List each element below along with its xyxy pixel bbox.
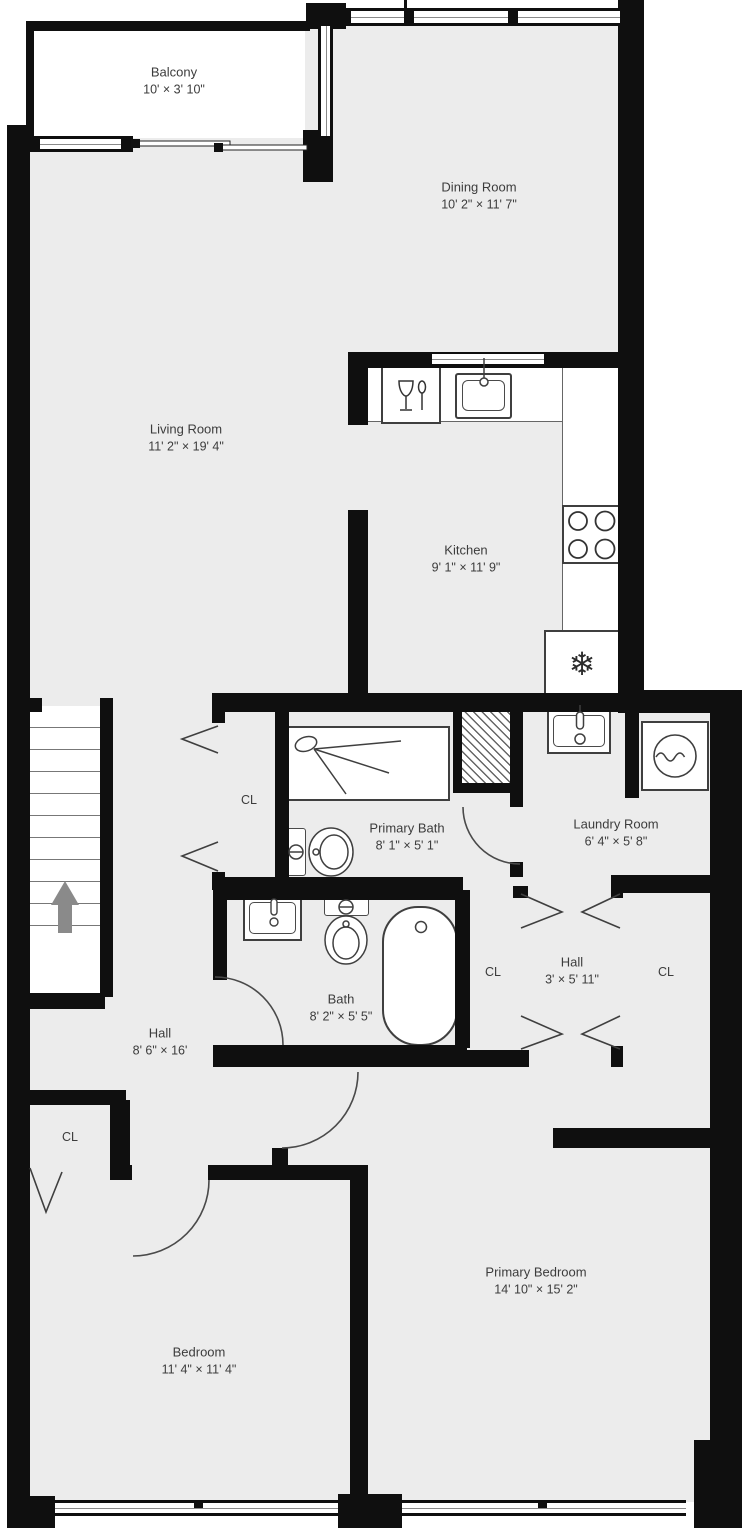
wall bbox=[110, 1100, 130, 1180]
room-name: Hall bbox=[133, 1025, 188, 1042]
window-cap bbox=[426, 352, 432, 366]
bathtub bbox=[382, 906, 458, 1046]
wall-tick bbox=[404, 0, 407, 10]
laundry-sink-basin bbox=[553, 715, 605, 747]
closet-label: CL bbox=[485, 965, 501, 979]
window bbox=[30, 136, 133, 152]
bath-sink-basin bbox=[249, 902, 296, 934]
wall bbox=[100, 698, 113, 997]
wall bbox=[7, 125, 30, 1528]
room-name: Laundry Room bbox=[573, 816, 658, 833]
kitchen-sink-basin bbox=[462, 380, 505, 411]
room-dims: 11' 2" × 19' 4" bbox=[148, 438, 224, 454]
wall bbox=[30, 698, 42, 712]
wall bbox=[350, 1165, 368, 1528]
room-label-primary-bedroom: Primary Bedroom 14' 10" × 15' 2" bbox=[485, 1264, 586, 1297]
wall bbox=[694, 1440, 742, 1528]
room-name: Living Room bbox=[148, 421, 224, 438]
stove bbox=[562, 505, 620, 564]
window-tick bbox=[538, 1502, 547, 1508]
room-name: Bath bbox=[310, 991, 373, 1008]
wall bbox=[455, 890, 470, 1048]
room-dims: 8' 6" × 16' bbox=[133, 1042, 188, 1058]
washer bbox=[641, 721, 709, 791]
wall bbox=[453, 783, 523, 793]
wall bbox=[25, 993, 105, 1009]
kitchen-counter-right bbox=[562, 366, 620, 632]
wall bbox=[275, 693, 289, 890]
wall bbox=[553, 1128, 742, 1148]
room-label-balcony: Balcony 10' × 3' 10" bbox=[143, 64, 205, 97]
wall bbox=[26, 21, 310, 31]
room-label-kitchen: Kitchen 9' 1" × 11' 9" bbox=[432, 542, 501, 575]
floor-lower bbox=[28, 690, 712, 1502]
room-name: Dining Room bbox=[441, 179, 517, 196]
wall bbox=[212, 705, 225, 723]
room-dims: 8' 1" × 5' 1" bbox=[369, 837, 444, 853]
room-name: Primary Bedroom bbox=[485, 1264, 586, 1281]
wall bbox=[7, 1496, 55, 1528]
room-name: Hall bbox=[545, 954, 599, 971]
room-label-hall-small: Hall 3' × 5' 11" bbox=[545, 954, 599, 987]
wall bbox=[213, 900, 227, 980]
room-label-dining-room: Dining Room 10' 2" × 11' 7" bbox=[441, 179, 517, 212]
toilet-tank-primary bbox=[286, 828, 306, 876]
room-dims: 14' 10" × 15' 2" bbox=[485, 1281, 586, 1297]
window-cap bbox=[343, 8, 351, 26]
wall bbox=[710, 690, 742, 1528]
wall bbox=[453, 693, 462, 793]
room-name: Bedroom bbox=[162, 1344, 237, 1361]
window-cap bbox=[544, 352, 550, 366]
wall bbox=[348, 510, 368, 693]
room-name: Kitchen bbox=[432, 542, 501, 559]
window-tick bbox=[194, 1502, 203, 1508]
window bbox=[318, 26, 333, 136]
wall bbox=[611, 875, 712, 893]
room-dims: 10' × 3' 10" bbox=[143, 81, 205, 97]
wall bbox=[611, 878, 623, 898]
shower bbox=[287, 726, 450, 801]
closet-label: CL bbox=[62, 1130, 78, 1144]
wall bbox=[208, 1165, 368, 1180]
window-mullion bbox=[508, 8, 518, 26]
window-cap bbox=[30, 136, 40, 152]
room-dims: 3' × 5' 11" bbox=[545, 971, 599, 987]
up-arrow-stem bbox=[58, 904, 72, 933]
room-label-primary-bath: Primary Bath 8' 1" × 5' 1" bbox=[369, 820, 444, 853]
wall bbox=[513, 886, 528, 898]
room-label-hall-main: Hall 8' 6" × 16' bbox=[133, 1025, 188, 1058]
room-name: Primary Bath bbox=[369, 820, 444, 837]
room-dims: 6' 4" × 5' 8" bbox=[573, 833, 658, 849]
wall bbox=[303, 130, 333, 182]
room-name: Balcony bbox=[143, 64, 205, 81]
snowflake-icon: ❄ bbox=[544, 630, 620, 697]
window bbox=[426, 352, 550, 366]
wall bbox=[618, 0, 644, 713]
room-label-bedroom: Bedroom 11' 4" × 11' 4" bbox=[162, 1344, 237, 1377]
dishwasher bbox=[381, 366, 441, 424]
window bbox=[343, 8, 620, 26]
closet-label: CL bbox=[241, 793, 257, 807]
room-label-living-room: Living Room 11' 2" × 19' 4" bbox=[148, 421, 224, 454]
wall bbox=[338, 1494, 402, 1528]
wall bbox=[625, 693, 639, 798]
utility-shaft bbox=[462, 712, 510, 784]
stair-landing bbox=[30, 940, 100, 993]
room-dims: 11' 4" × 11' 4" bbox=[162, 1361, 237, 1377]
room-label-laundry-room: Laundry Room 6' 4" × 5' 8" bbox=[573, 816, 658, 849]
wall bbox=[26, 21, 34, 140]
room-label-bath: Bath 8' 2" × 5' 5" bbox=[310, 991, 373, 1024]
closet-label: CL bbox=[658, 965, 674, 979]
wall bbox=[510, 862, 523, 877]
window-cap bbox=[121, 136, 133, 152]
window-mullion bbox=[404, 8, 414, 26]
up-arrow-icon bbox=[51, 881, 79, 905]
wall bbox=[213, 877, 463, 900]
room-dims: 8' 2" × 5' 5" bbox=[310, 1008, 373, 1024]
floor-plan: ❄ bbox=[0, 0, 742, 1536]
wall bbox=[212, 872, 225, 890]
wall bbox=[467, 1050, 529, 1067]
wall bbox=[213, 1045, 467, 1067]
room-dims: 10' 2" × 11' 7" bbox=[441, 196, 517, 212]
room-dims: 9' 1" × 11' 9" bbox=[432, 559, 501, 575]
wall bbox=[611, 1046, 623, 1067]
wall bbox=[348, 355, 368, 425]
